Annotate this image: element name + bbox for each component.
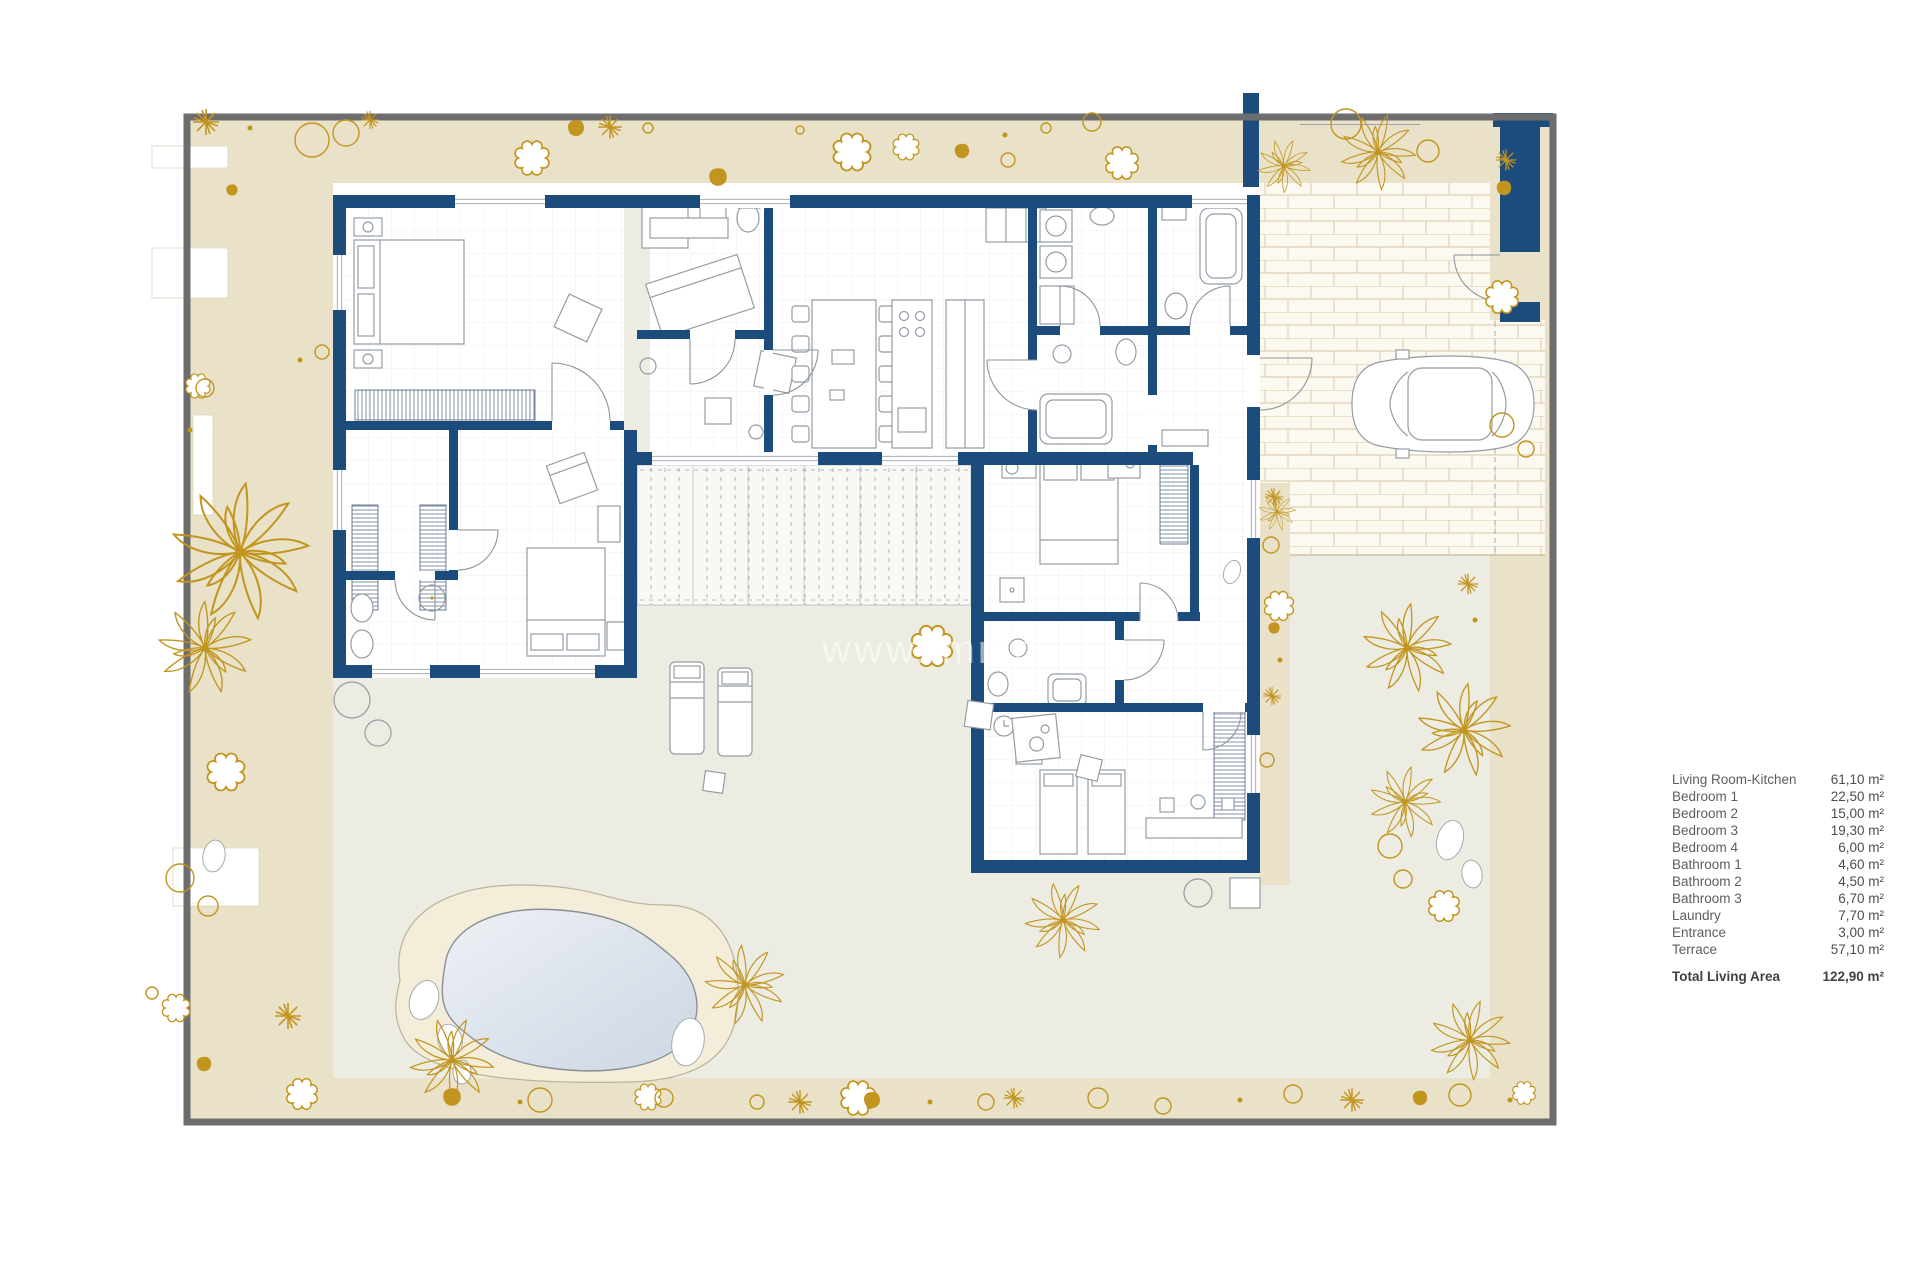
legend-room-area: 7,70 m² bbox=[1838, 907, 1884, 924]
legend-room-area: 6,00 m² bbox=[1838, 839, 1884, 856]
legend-room-area: 15,00 m² bbox=[1831, 805, 1884, 822]
legend-row: Terrace57,10 m² bbox=[1672, 941, 1884, 958]
pergola-terrace bbox=[637, 465, 971, 605]
legend-room-label: Entrance bbox=[1672, 924, 1726, 941]
legend-row: Entrance3,00 m² bbox=[1672, 924, 1884, 941]
legend-room-area: 3,00 m² bbox=[1838, 924, 1884, 941]
legend-room-area: 22,50 m² bbox=[1831, 788, 1884, 805]
legend-room-area: 19,30 m² bbox=[1831, 822, 1884, 839]
legend-row: Bedroom 319,30 m² bbox=[1672, 822, 1884, 839]
legend-total-label: Total Living Area bbox=[1672, 968, 1780, 985]
legend-row: Bathroom 24,50 m² bbox=[1672, 873, 1884, 890]
legend-room-area: 57,10 m² bbox=[1831, 941, 1884, 958]
legend-total-row: Total Living Area122,90 m² bbox=[1672, 968, 1884, 985]
car-icon bbox=[1352, 350, 1534, 458]
legend-room-label: Bathroom 1 bbox=[1672, 856, 1742, 873]
legend-room-label: Terrace bbox=[1672, 941, 1717, 958]
legend-row: Bathroom 14,60 m² bbox=[1672, 856, 1884, 873]
legend-room-area: 6,70 m² bbox=[1838, 890, 1884, 907]
floor-plan-page: www.immo Living Room-Kitchen61,10 m² Bed… bbox=[0, 0, 1920, 1280]
legend-room-label: Bathroom 2 bbox=[1672, 873, 1742, 890]
legend-room-label: Bedroom 4 bbox=[1672, 839, 1738, 856]
legend-room-label: Bathroom 3 bbox=[1672, 890, 1742, 907]
floor-plan-svg bbox=[0, 0, 1920, 1280]
legend-room-area: 4,60 m² bbox=[1838, 856, 1884, 873]
legend-total-area: 122,90 m² bbox=[1822, 968, 1884, 985]
legend-room-label: Laundry bbox=[1672, 907, 1721, 924]
legend-row: Bedroom 215,00 m² bbox=[1672, 805, 1884, 822]
legend-room-area: 61,10 m² bbox=[1831, 771, 1884, 788]
legend-row: Bedroom 122,50 m² bbox=[1672, 788, 1884, 805]
legend-row: Bathroom 36,70 m² bbox=[1672, 890, 1884, 907]
dining-table bbox=[792, 300, 896, 448]
legend-room-label: Bedroom 1 bbox=[1672, 788, 1738, 805]
legend-room-label: Living Room-Kitchen bbox=[1672, 771, 1797, 788]
legend-room-label: Bedroom 2 bbox=[1672, 805, 1738, 822]
area-legend: Living Room-Kitchen61,10 m² Bedroom 122,… bbox=[1672, 771, 1884, 985]
planting-strip bbox=[1260, 483, 1290, 885]
legend-row: Laundry7,70 m² bbox=[1672, 907, 1884, 924]
legend-row: Bedroom 46,00 m² bbox=[1672, 839, 1884, 856]
legend-row: Living Room-Kitchen61,10 m² bbox=[1672, 771, 1884, 788]
legend-room-area: 4,50 m² bbox=[1838, 873, 1884, 890]
legend-room-label: Bedroom 3 bbox=[1672, 822, 1738, 839]
